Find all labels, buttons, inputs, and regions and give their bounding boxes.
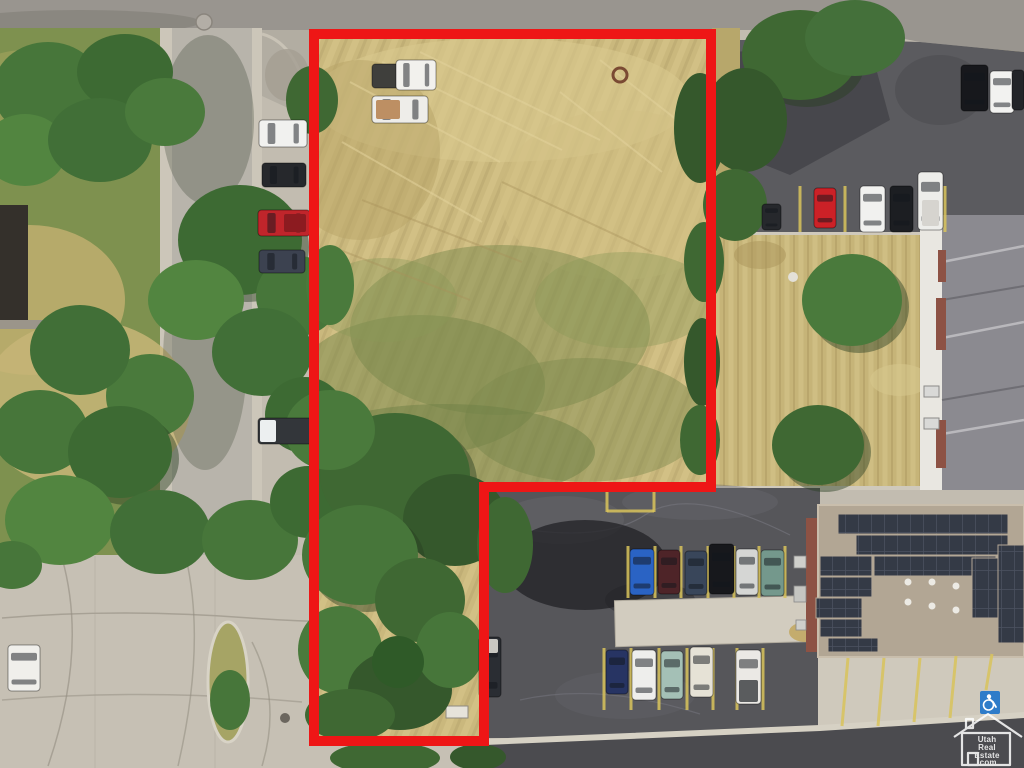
- ac-unit: [924, 386, 939, 397]
- rear-window: [713, 582, 731, 588]
- rear-window: [292, 254, 297, 270]
- solar-panel: [820, 577, 872, 597]
- tree: [372, 636, 424, 688]
- windshield: [964, 73, 985, 81]
- rooftop-equipment: [794, 586, 806, 602]
- roof-vent: [953, 583, 960, 590]
- windshield: [893, 194, 910, 202]
- truck-bed: [376, 100, 400, 119]
- car-white: [259, 120, 307, 147]
- car-silver: [736, 549, 758, 595]
- windshield: [633, 557, 651, 565]
- car-teal-light: [661, 651, 683, 699]
- roof-vent: [905, 579, 912, 586]
- rear-window: [662, 583, 677, 588]
- windshield: [739, 557, 755, 565]
- suv-white: [632, 650, 656, 700]
- solar-panel: [820, 556, 872, 576]
- truck-red: [258, 210, 310, 236]
- rooftop-equipment: [794, 556, 806, 568]
- car-red: [814, 188, 836, 228]
- pickup-white-cargo: [372, 96, 428, 123]
- vehicle-body: [259, 120, 307, 147]
- rear-window: [694, 685, 710, 691]
- windshield: [403, 63, 409, 87]
- truck-white-cab: [258, 418, 312, 444]
- windshield: [863, 194, 882, 202]
- rear-window: [689, 584, 704, 589]
- solar-panel: [972, 558, 998, 618]
- car-teal: [761, 550, 784, 596]
- pickup-tan: [690, 647, 713, 697]
- windshield: [609, 657, 625, 664]
- tree: [416, 612, 484, 688]
- windshield: [635, 659, 653, 668]
- rear-window: [294, 167, 299, 184]
- dry-patch: [734, 241, 786, 269]
- tree: [125, 78, 205, 146]
- rear-window: [864, 221, 882, 226]
- rear-window: [766, 224, 778, 227]
- tree: [30, 305, 130, 395]
- car-black: [262, 163, 306, 187]
- car-slate: [685, 551, 707, 595]
- bench: [446, 706, 468, 718]
- roof-vent: [953, 607, 960, 614]
- windshield: [817, 195, 833, 202]
- vehicle-body: [1012, 70, 1024, 110]
- windshield: [765, 208, 778, 212]
- rear-window: [412, 100, 418, 120]
- rear-window: [610, 683, 625, 688]
- windshield: [268, 123, 276, 144]
- rear-window: [636, 688, 653, 694]
- vehicle-body: [259, 250, 305, 273]
- truck-bed: [739, 680, 758, 702]
- windshield: [661, 557, 677, 564]
- solar-panel: [816, 598, 862, 618]
- pickup-white: [918, 172, 943, 230]
- roof-vent: [905, 599, 912, 606]
- rear-window: [665, 687, 680, 692]
- rear-window: [894, 221, 910, 226]
- solar-panel: [828, 638, 878, 652]
- windshield: [993, 78, 1011, 85]
- rooftop-equipment: [796, 620, 806, 630]
- windshield: [712, 553, 731, 562]
- car-maroon: [658, 550, 680, 594]
- windshield: [921, 182, 940, 192]
- rear-window: [740, 584, 755, 589]
- tree: [805, 0, 905, 76]
- rear-window: [994, 103, 1011, 108]
- car-black: [890, 186, 913, 232]
- car-white: [8, 645, 40, 691]
- rear-window: [12, 680, 37, 685]
- windshield: [267, 253, 274, 270]
- tree: [772, 405, 864, 485]
- truck-bed: [260, 420, 276, 442]
- windshield: [764, 558, 781, 566]
- roof-vent: [929, 603, 936, 610]
- solar-panel: [820, 619, 862, 637]
- roof-vent: [929, 579, 936, 586]
- aerial-photo: Utah Real Estate .com: [0, 0, 1024, 768]
- brick-wall: [938, 250, 946, 282]
- brick-wall: [936, 298, 946, 350]
- rear-window: [294, 124, 299, 144]
- windshield: [693, 656, 710, 665]
- manhole: [196, 14, 212, 30]
- apartment-roof: [942, 215, 1024, 490]
- vehicle-body: [396, 60, 436, 90]
- rear-window: [634, 584, 651, 589]
- car-dark: [762, 204, 781, 230]
- building-roof-west: [0, 205, 28, 323]
- tree: [210, 670, 250, 730]
- car-blue: [630, 549, 654, 595]
- windshield: [267, 213, 275, 233]
- car-navy: [606, 650, 628, 694]
- suv-black: [709, 544, 734, 594]
- truck-bed: [922, 200, 939, 226]
- windshield: [739, 659, 758, 668]
- watermark-line: .com: [977, 758, 996, 767]
- solar-panel: [856, 535, 1008, 555]
- car-white: [990, 71, 1014, 113]
- windshield: [688, 558, 704, 565]
- car-white: [860, 186, 885, 232]
- rear-window: [425, 64, 429, 87]
- windshield: [270, 166, 277, 184]
- truck-bed: [284, 214, 306, 232]
- solar-panel: [998, 545, 1024, 643]
- windshield: [664, 659, 680, 667]
- handicap-marking: [980, 691, 1000, 714]
- drain: [280, 713, 290, 723]
- pickup-white-bed: [736, 650, 761, 704]
- walkway-divider: [614, 595, 823, 646]
- rear-window: [818, 218, 833, 222]
- rear-window: [765, 585, 781, 590]
- vehicle-body: [262, 163, 306, 187]
- aerial-photo-listing: Utah Real Estate .com: [0, 0, 1024, 768]
- solar-panel: [838, 514, 1008, 534]
- tree: [802, 254, 902, 346]
- car-dark: [1012, 70, 1024, 110]
- windshield: [11, 653, 37, 661]
- ac-unit: [924, 418, 939, 429]
- utility-dome: [788, 272, 798, 282]
- pickup-white: [396, 60, 436, 90]
- rear-window: [965, 100, 985, 105]
- car-gray: [259, 250, 305, 273]
- suv-black: [961, 65, 988, 111]
- tree: [110, 490, 210, 574]
